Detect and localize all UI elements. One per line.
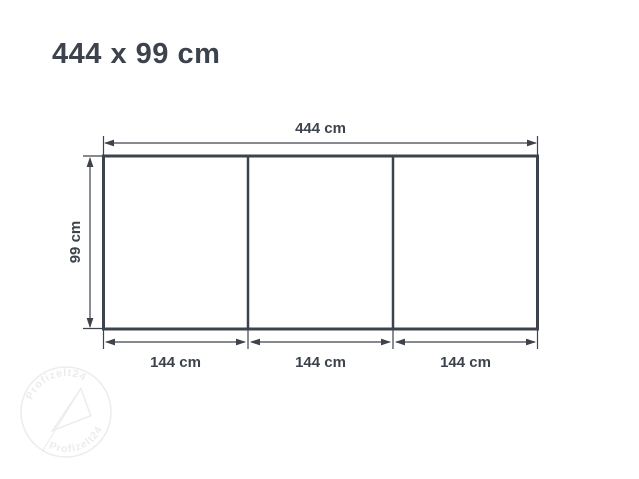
- section-2-width-label: 144 cm: [295, 354, 346, 371]
- bottom-section-dimensions: 144 cm 144 cm 144 cm: [104, 330, 538, 371]
- section-1-width-label: 144 cm: [150, 354, 201, 371]
- arrow-down-icon: [87, 318, 94, 328]
- section-3-width-label: 144 cm: [440, 354, 491, 371]
- arrow-right-icon: [526, 339, 536, 346]
- watermark-text-top: Profizelt24: [18, 358, 91, 405]
- arrow-left-icon: [105, 339, 115, 346]
- watermark-triangle-icon: [42, 389, 91, 431]
- arrow-right-icon: [527, 140, 537, 147]
- dimension-diagram-page: 444 x 99 cm Profizelt24 Profizelt24: [0, 0, 639, 479]
- top-width-dimension: 444 cm: [104, 120, 538, 156]
- total-width-label: 444 cm: [295, 120, 346, 137]
- left-height-dimension: 99 cm: [67, 156, 104, 329]
- panel-outline-group: [104, 156, 538, 329]
- arrow-right-icon: [236, 339, 246, 346]
- panel-dimension-diagram: Profizelt24 Profizelt24 444 cm: [0, 0, 639, 479]
- panel-outline: [104, 156, 538, 329]
- arrow-left-icon: [104, 140, 114, 147]
- watermark-logo: Profizelt24 Profizelt24: [8, 354, 123, 469]
- arrow-right-icon: [381, 339, 391, 346]
- arrow-left-icon: [395, 339, 405, 346]
- arrow-up-icon: [87, 157, 94, 167]
- height-label: 99 cm: [67, 221, 84, 264]
- arrow-left-icon: [250, 339, 260, 346]
